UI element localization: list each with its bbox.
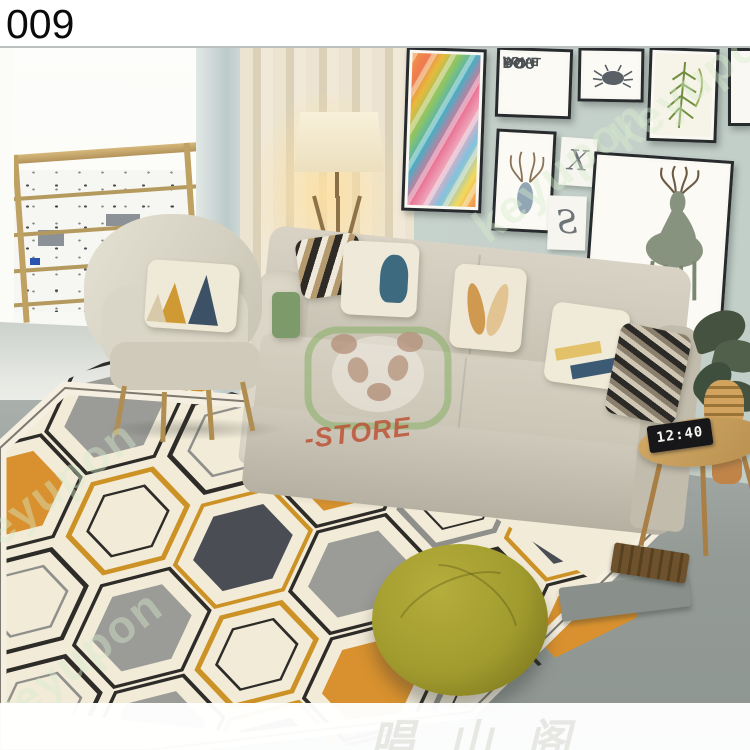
product-code: 009 xyxy=(6,1,74,48)
pillow-leaf xyxy=(482,282,513,338)
footer-watermark-band: 唱山阁 xyxy=(0,703,750,750)
abstract-art xyxy=(407,53,480,207)
armchair-front xyxy=(110,342,260,390)
quote-print-frame: DO WHAT YOU LOVE xyxy=(495,47,573,120)
watermark-store-logo: -STORE xyxy=(286,326,476,450)
pillow-triangle-tan xyxy=(146,293,168,322)
railing-post xyxy=(12,155,30,323)
pillow-triangle-navy xyxy=(188,274,221,326)
crab-icon xyxy=(584,54,639,97)
product-photo: DO WHAT YOU LOVE xyxy=(0,0,750,750)
pillow-stripe-yellow xyxy=(555,341,602,361)
header-bar: 009 xyxy=(0,0,750,48)
railing-bar xyxy=(3,184,209,202)
quote-line: LOVE xyxy=(502,55,539,70)
pillow-motif xyxy=(379,254,409,303)
floor-lamp-shade xyxy=(294,112,384,172)
quote-print: DO WHAT YOU LOVE xyxy=(501,53,567,113)
brush-streaks xyxy=(407,53,480,207)
crab-print xyxy=(584,54,639,97)
floor-lamp-stem xyxy=(335,172,339,198)
triangle-pillow xyxy=(144,259,241,333)
blue-motif-pillow xyxy=(340,240,420,318)
abstract-art-frame xyxy=(401,47,487,214)
pouf-ottoman xyxy=(372,544,548,696)
watermark-chinese-text: 唱山阁 xyxy=(367,705,617,750)
